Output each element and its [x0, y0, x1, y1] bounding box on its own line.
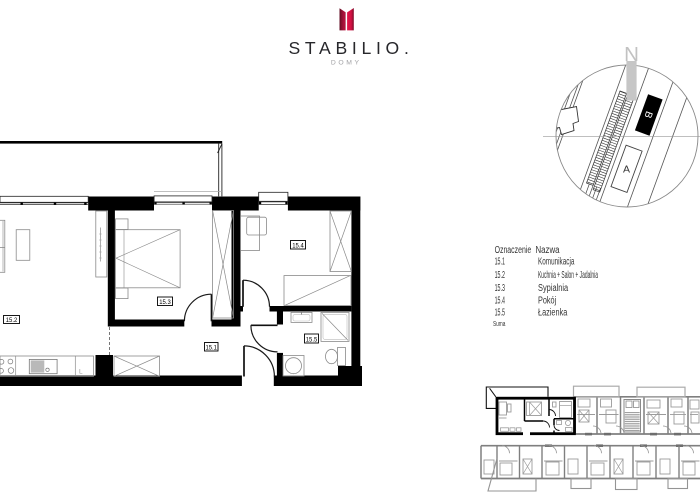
svg-text:Łazienka: Łazienka [538, 308, 568, 319]
svg-text:L: L [79, 369, 83, 376]
svg-text:Nazwa: Nazwa [536, 245, 560, 256]
svg-text:Kuchnia + Salon + Jadalnia: Kuchnia + Salon + Jadalnia [538, 270, 598, 281]
svg-text:15.4: 15.4 [292, 242, 304, 249]
svg-text:Pokój: Pokój [538, 295, 556, 306]
svg-text:Oznaczenie: Oznaczenie [495, 245, 532, 256]
svg-text:15.3: 15.3 [159, 299, 171, 306]
svg-text:DOMY: DOMY [331, 60, 362, 67]
svg-text:STABILIO.: STABILIO. [288, 38, 413, 58]
svg-text:N: N [624, 43, 639, 66]
svg-text:A: A [623, 164, 630, 176]
svg-text:15.2: 15.2 [495, 270, 506, 281]
svg-text:15.5: 15.5 [306, 336, 318, 343]
svg-text:15.4: 15.4 [495, 295, 506, 306]
svg-text:15.1: 15.1 [205, 344, 217, 351]
svg-text:15.5: 15.5 [495, 308, 506, 319]
svg-text:15.3: 15.3 [495, 283, 506, 294]
svg-text:Sypialnia: Sypialnia [538, 283, 569, 294]
svg-text:Suma: Suma [493, 319, 506, 328]
svg-text:Komunikacja: Komunikacja [538, 257, 575, 268]
svg-text:15.1: 15.1 [495, 257, 506, 268]
svg-text:15.2: 15.2 [6, 317, 18, 324]
